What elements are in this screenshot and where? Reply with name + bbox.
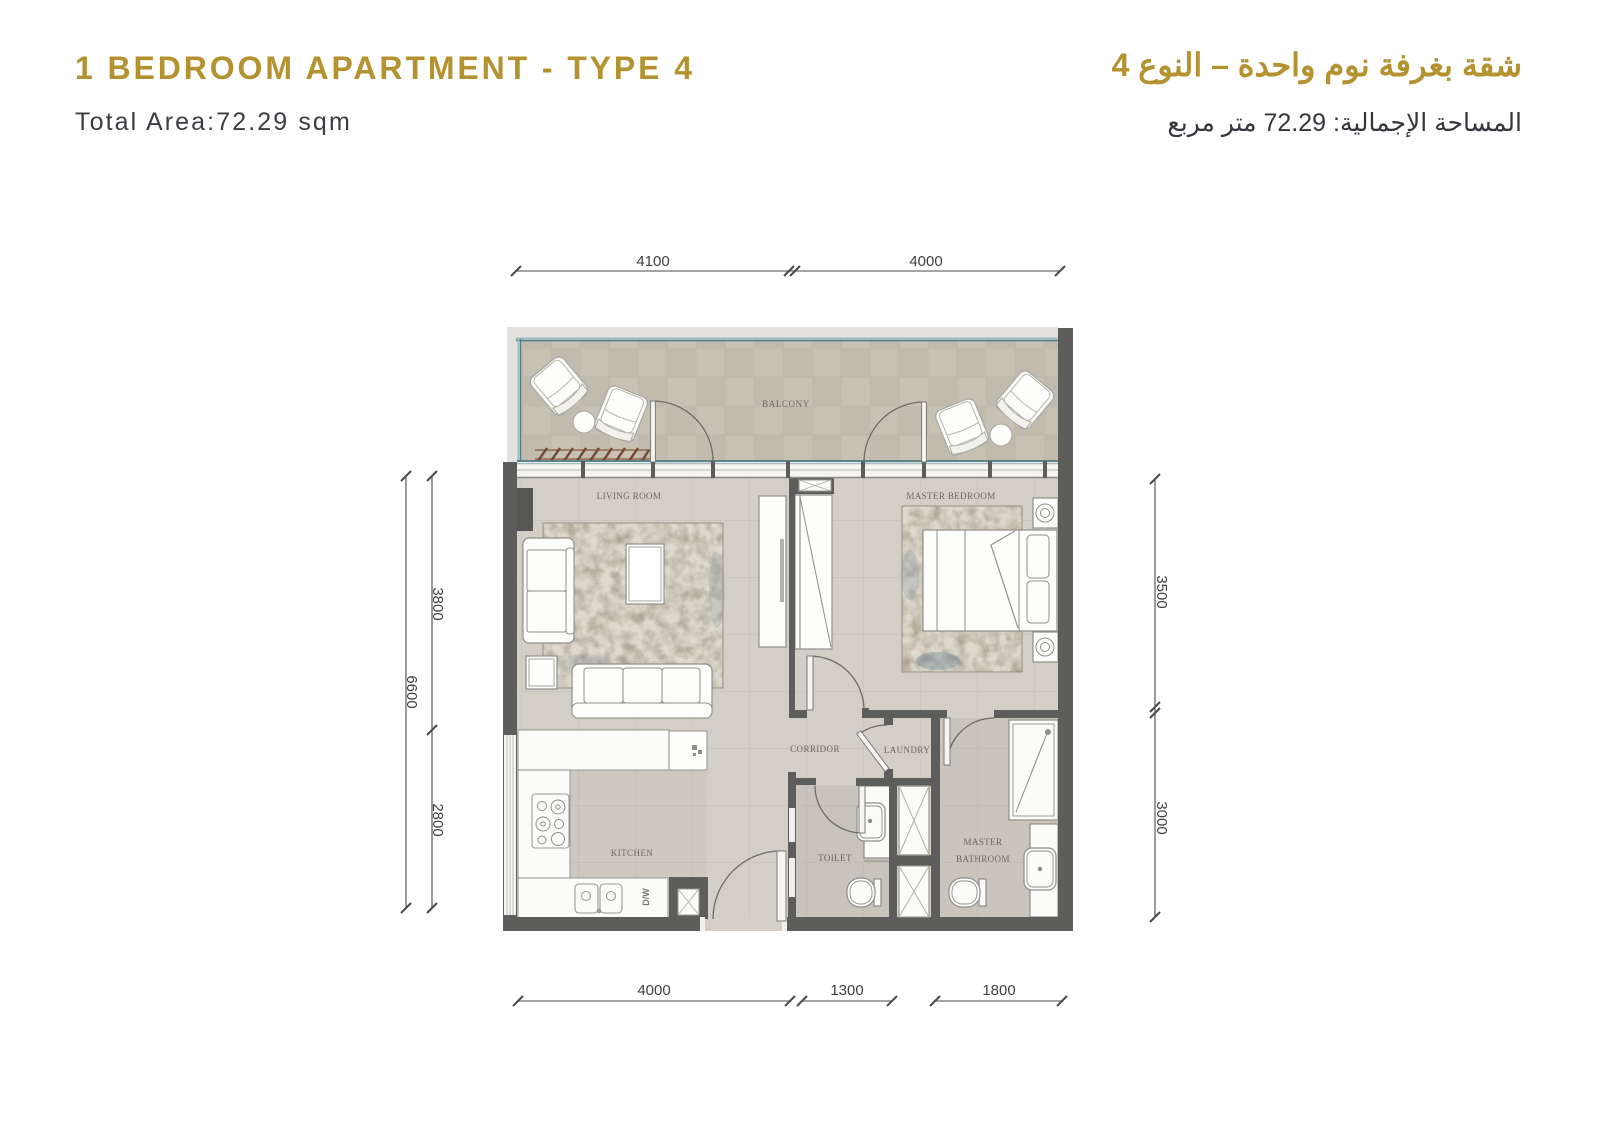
svg-text:4000: 4000 — [909, 253, 942, 270]
svg-text:KITCHEN: KITCHEN — [611, 848, 653, 858]
svg-text:LIVING ROOM: LIVING ROOM — [597, 491, 662, 501]
svg-text:LAUNDRY: LAUNDRY — [884, 745, 930, 755]
svg-text:MASTER BEDROOM: MASTER BEDROOM — [906, 491, 995, 501]
svg-text:3500: 3500 — [1153, 575, 1170, 608]
svg-text:1800: 1800 — [982, 982, 1015, 999]
svg-text:D/W: D/W — [641, 888, 651, 906]
svg-text:BALCONY: BALCONY — [762, 399, 810, 409]
svg-text:4000: 4000 — [637, 982, 670, 999]
svg-text:MASTER: MASTER — [964, 837, 1003, 847]
svg-text:3800: 3800 — [429, 587, 446, 620]
svg-text:6600: 6600 — [403, 675, 420, 708]
svg-text:4100: 4100 — [636, 253, 669, 270]
svg-text:1300: 1300 — [830, 982, 863, 999]
svg-text:2800: 2800 — [429, 803, 446, 836]
svg-text:CORRIDOR: CORRIDOR — [790, 744, 840, 754]
svg-text:BATHROOM: BATHROOM — [956, 854, 1010, 864]
svg-text:3000: 3000 — [1153, 801, 1170, 834]
svg-text:TOILET: TOILET — [818, 853, 852, 863]
